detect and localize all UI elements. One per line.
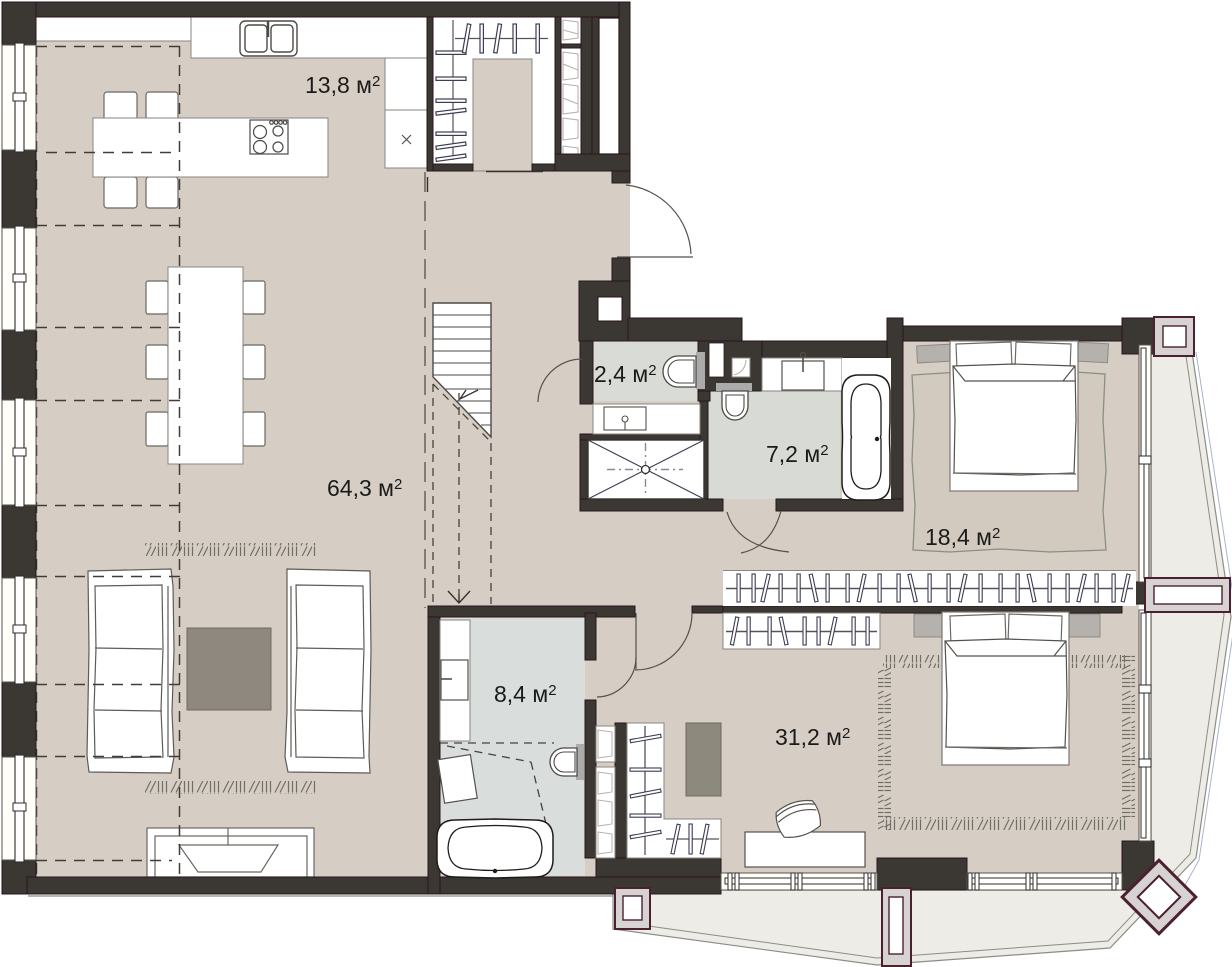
svg-text:64,3 м2: 64,3 м2 bbox=[327, 475, 402, 501]
svg-text:31,2 м2: 31,2 м2 bbox=[775, 724, 850, 750]
svg-text:7,2 м2: 7,2 м2 bbox=[766, 441, 829, 467]
svg-text:18,4 м2: 18,4 м2 bbox=[925, 524, 1000, 550]
svg-text:2,4 м2: 2,4 м2 bbox=[594, 361, 657, 387]
svg-text:13,8 м2: 13,8 м2 bbox=[305, 72, 380, 98]
svg-text:8,4 м2: 8,4 м2 bbox=[494, 681, 557, 707]
